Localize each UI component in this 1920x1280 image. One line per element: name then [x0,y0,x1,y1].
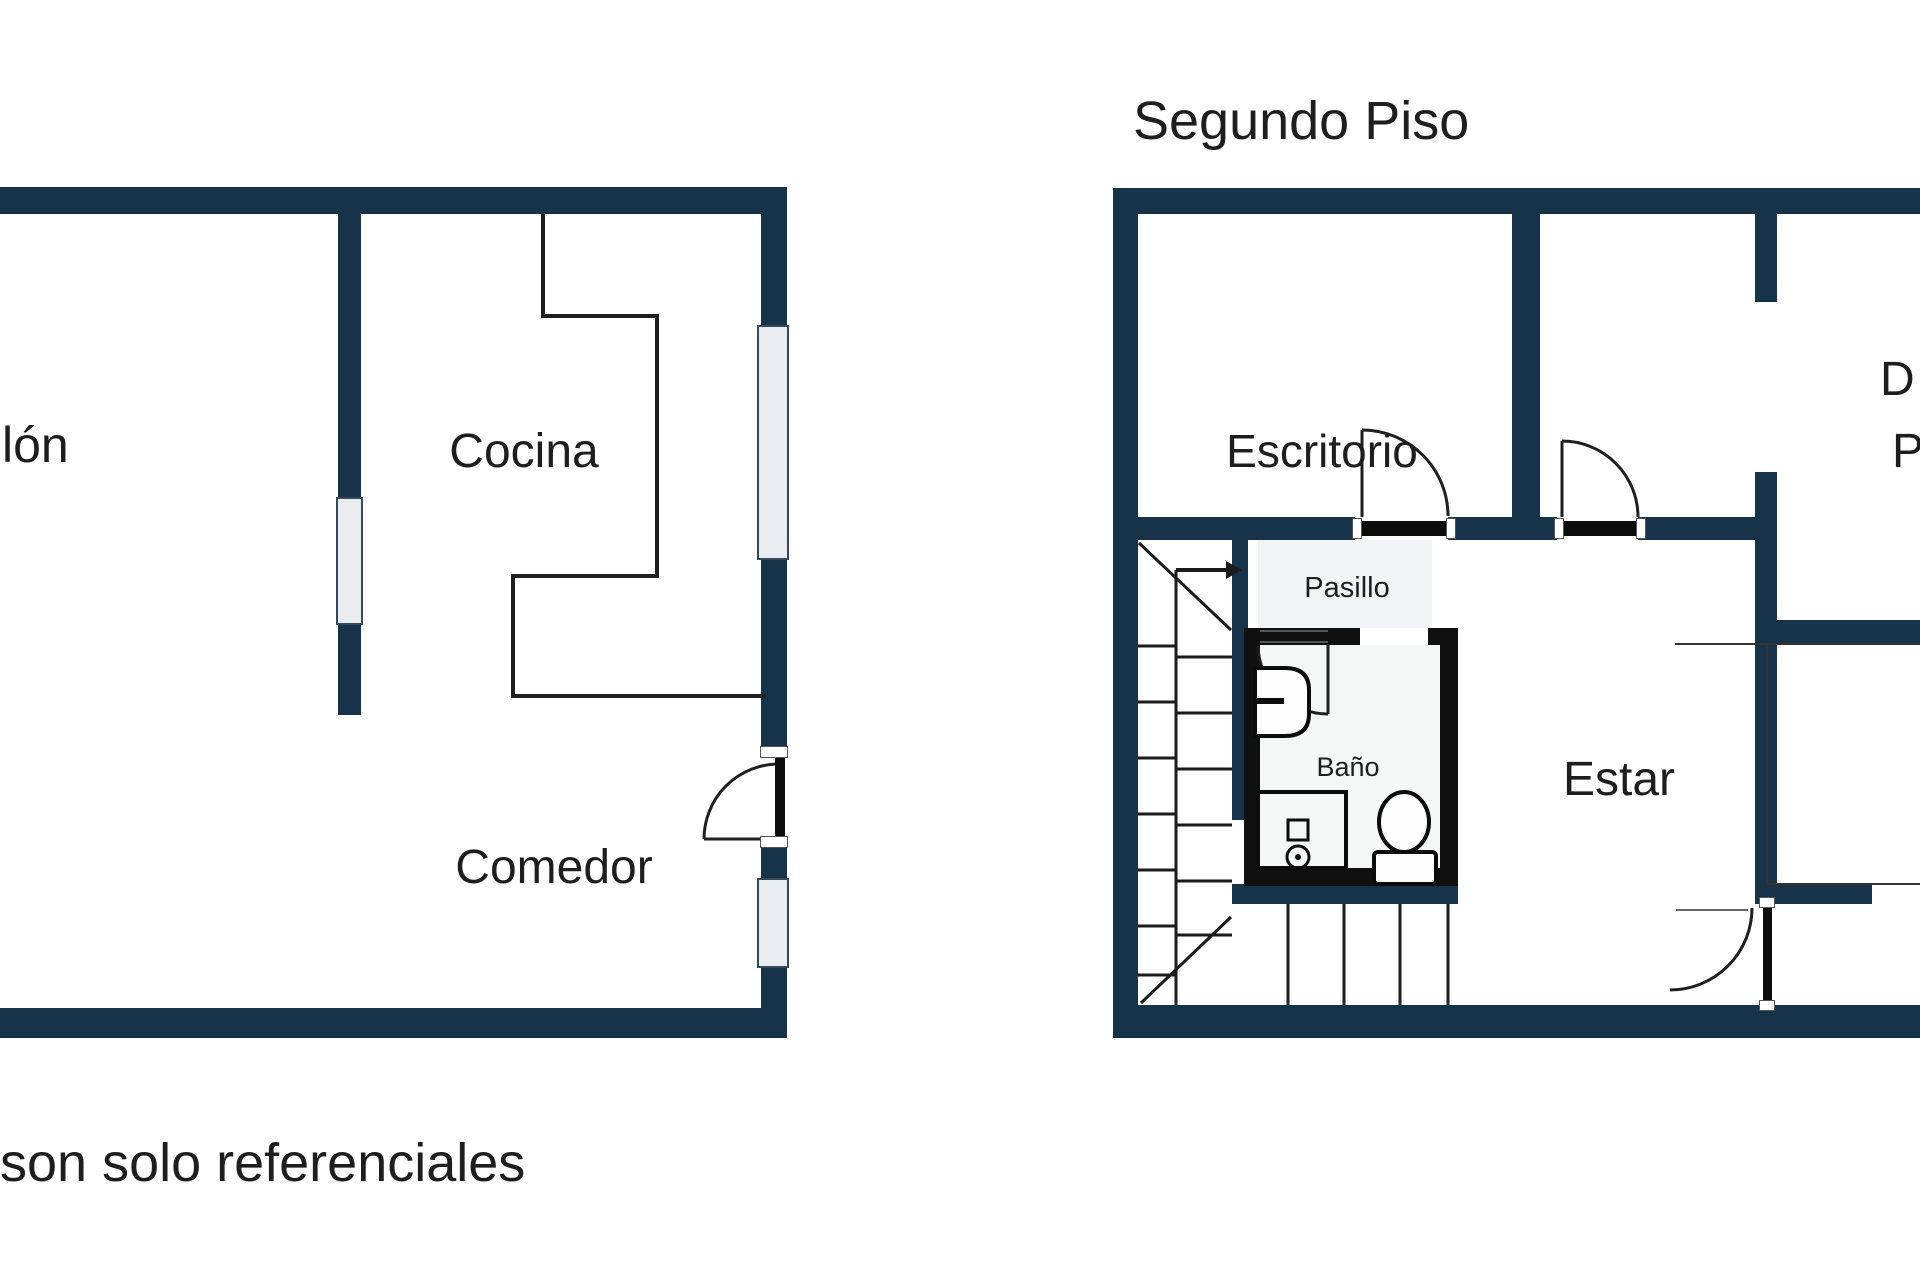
first-floor-plan [0,0,820,1280]
escritorio-door-sill [1360,521,1448,536]
estar-exit-door-jamb-bottom [1759,1000,1775,1011]
p1-right-window-upper [757,325,789,560]
middleroom-door-sill [1562,521,1638,536]
room-label-dormitorio-line2-fragment: P [1892,424,1920,479]
estar-exit-door-leaf [1763,908,1772,1002]
p1-interior-window [336,497,363,625]
p2-left-wall [1113,188,1138,1037]
second-floor-plan [1100,0,1920,1280]
bano-bottom-wall [1244,868,1458,886]
p2-escritorio-right-wall [1512,214,1540,517]
p1-bottom-wall [0,1008,787,1038]
bano-top-wall [1244,628,1360,645]
p1-interior-wall-seg1 [338,214,361,497]
p2-hall-wall-seg1 [1138,517,1355,540]
escritorio-door-jamb-left [1352,518,1362,539]
p1-right-window-lower [757,878,789,968]
estar-exit-door-jamb-top [1759,897,1775,908]
p1-right-wall-seg4 [761,968,787,1038]
bano-right-wall [1440,628,1458,884]
p1-top-wall [0,187,787,214]
p2-hall-wall-seg2 [1448,517,1557,540]
room-label-pasillo: Pasillo [1304,572,1389,605]
second-floor-title: Segundo Piso [1133,90,1469,152]
room-label-estar: Estar [1563,752,1675,807]
p2-dormitorio-bottom-wall [1775,620,1920,643]
p1-door-closed-leaf [775,758,785,838]
p2-dormitorio-wall-stub [1755,214,1777,302]
p1-right-wall-seg2 [761,560,787,748]
room-label-comedor: Comedor [455,840,652,895]
room-label-escritorio: Escritorio [1226,424,1418,478]
p1-interior-wall-seg2 [338,625,361,715]
p2-dormitorio-wall-lower [1755,472,1777,902]
p1-door-jamb-bottom [760,836,788,848]
escritorio-door-jamb-right [1446,518,1456,539]
p2-bottom-wall [1113,1005,1920,1038]
p2-bano-under-band [1232,884,1458,904]
p1-right-wall-seg3 [761,848,787,878]
p1-door-jamb-top [760,746,788,758]
p1-right-wall-seg1 [761,187,787,325]
room-label-salon-fragment: lón [2,416,69,474]
floor-plan-page: { "second_floor_title": "Segundo Piso", … [0,0,1920,1280]
footnote-fragment: son solo referenciales [0,1132,525,1194]
bano-left-wall [1244,628,1260,886]
room-label-dormitorio-line1-fragment: D [1880,352,1915,407]
room-label-bano: Baño [1316,752,1379,783]
room-label-cocina: Cocina [449,424,598,479]
p2-top-wall [1113,188,1920,214]
middleroom-door-jamb-left [1554,518,1564,539]
middleroom-door-jamb-right [1636,518,1646,539]
